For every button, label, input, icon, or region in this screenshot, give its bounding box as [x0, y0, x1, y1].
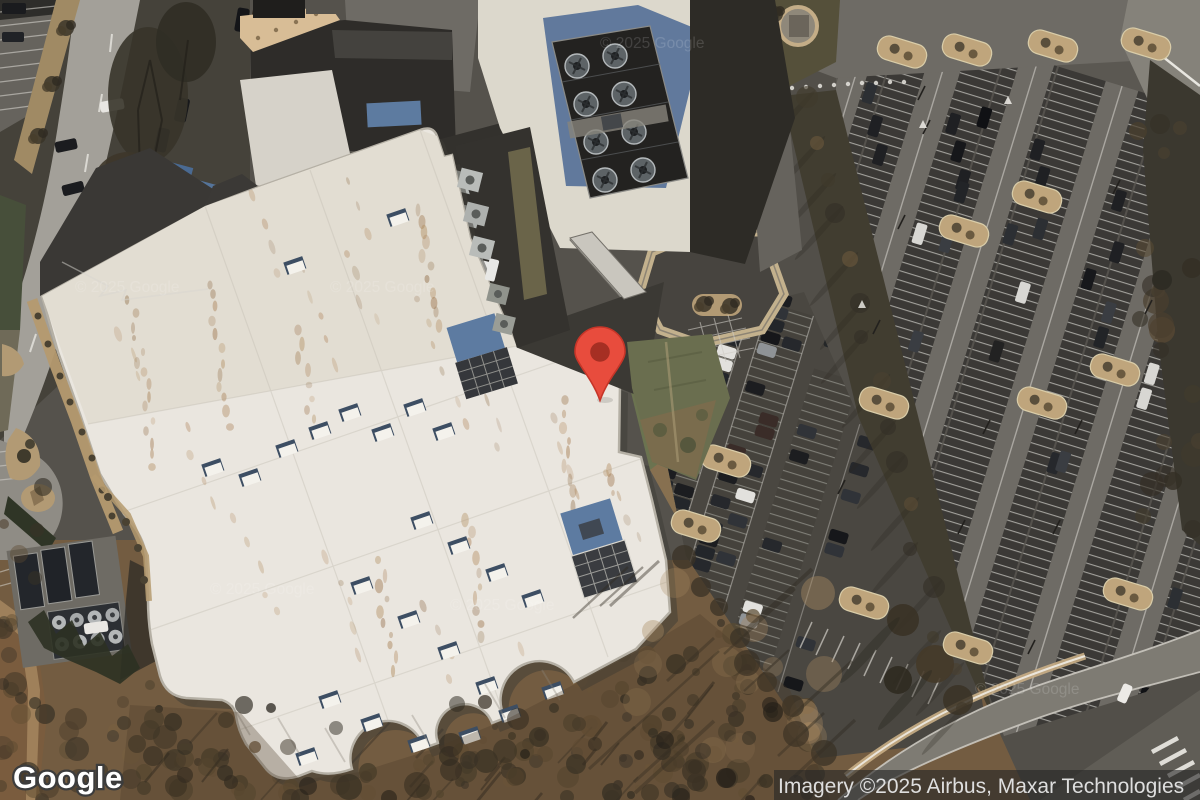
svg-text:© 2025 Google: © 2025 Google — [75, 279, 180, 296]
svg-text:© 2025 Google: © 2025 Google — [975, 681, 1080, 698]
svg-text:Google: Google — [13, 760, 123, 795]
svg-text:© 2025 Google: © 2025 Google — [450, 597, 555, 614]
svg-text:Imagery ©2025 Airbus, Maxar Te: Imagery ©2025 Airbus, Maxar Technologies — [778, 775, 1184, 798]
svg-text:© 2025 Google: © 2025 Google — [600, 35, 705, 52]
svg-text:© 2025 Google: © 2025 Google — [330, 279, 435, 296]
svg-text:© 2025 Google: © 2025 Google — [210, 581, 315, 598]
